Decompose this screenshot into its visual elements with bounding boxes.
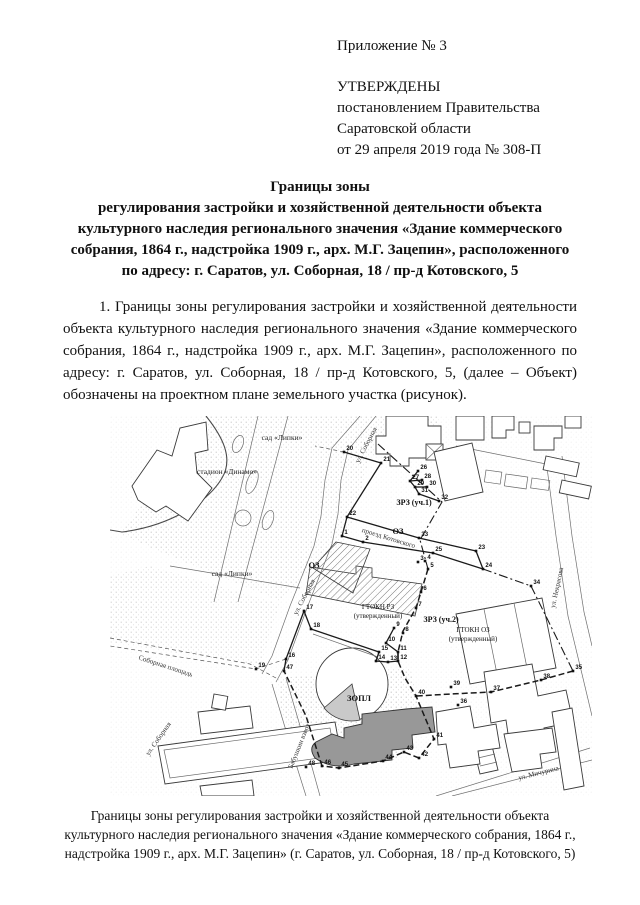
boundary-point-marker [424,560,427,563]
boundary-point-number: 14 [378,655,385,661]
paragraph-1: 1. Границы зоны регулирования застройки … [63,296,577,406]
boundary-point-number: 10 [388,637,395,643]
map-label: стадион «Динамо» [197,467,257,476]
site-plan-map: сад «Липки»стадион «Динамо»сад «Липки»ул… [110,416,592,796]
map-label: сад «Липки» [212,569,253,578]
boundary-point-number: 26 [420,465,427,471]
boundary-point-marker [475,550,478,553]
map-label: ОЗ [392,526,404,536]
boundary-point-marker [417,470,420,473]
boundary-point-marker [285,658,288,661]
boundary-point-number: 16 [288,653,295,659]
approval-line: от 29 апреля 2019 года № 308-П [337,140,577,161]
boundary-point-number: 25 [435,547,442,553]
map-label: ОЗ [308,560,320,570]
boundary-point-number: 32 [441,495,448,501]
map-label: (утвержденный) [354,612,403,620]
boundary-point-marker [338,767,341,770]
boundary-point-number: 31 [421,488,428,494]
boundary-point-marker [438,500,441,503]
caption-line: культурного наследия регионального значе… [63,825,577,844]
boundary-point-number: 40 [418,690,425,696]
title-line: собрания, 1864 г., надстройка 1909 г., а… [63,240,577,261]
map-label: сад «Липки» [262,433,303,442]
boundary-point-number: 21 [383,457,390,463]
boundary-point-marker [283,670,286,673]
boundary-point-number: 18 [313,623,320,629]
boundary-point-marker [382,760,385,763]
boundary-point-marker [418,537,421,540]
document-page: { "page": { "appendix": "Приложение № 3"… [0,0,640,905]
boundary-point-marker [305,766,308,769]
boundary-point-number: 36 [460,699,467,705]
boundary-point-marker [255,668,258,671]
boundary-point-marker [362,541,365,544]
map-label: ЗРЗ (уч.1) [396,498,432,507]
boundary-point-number: 23 [478,545,485,551]
boundary-point-number: 22 [349,511,356,517]
boundary-point-marker [432,552,435,555]
boundary-point-marker [450,686,453,689]
boundary-point-number: 35 [575,665,582,671]
map-label: ГТОКН РЗ [362,603,395,611]
boundary-point-marker [380,462,383,465]
approval-line: Саратовской области [337,119,577,140]
boundary-point-marker [343,451,346,454]
boundary-point-marker [418,757,421,760]
boundary-point-marker [387,661,390,664]
title-line: по адресу: г. Саратов, ул. Соборная, 18 … [63,261,577,282]
boundary-point-marker [457,704,460,707]
boundary-point-number: 29 [417,481,424,487]
boundary-point-number: 17 [306,605,313,611]
boundary-point-number: 43 [406,746,413,752]
boundary-point-number: 41 [436,733,443,739]
boundary-point-number: 13 [390,656,397,662]
boundary-point-number: 24 [485,563,492,569]
boundary-point-number: 33 [421,532,428,538]
boundary-point-marker [572,670,575,673]
boundary-point-marker [409,480,412,483]
approval-line: постановлением Правительства [337,98,577,119]
figure-caption: Границы зоны регулирования застройки и х… [63,806,577,863]
boundary-point-number: 19 [258,663,265,669]
boundary-point-marker [375,660,378,663]
approval-block: УТВЕРЖДЕНЫ постановлением Правительства … [337,77,577,161]
boundary-point-marker [414,486,417,489]
boundary-point-marker [420,591,423,594]
boundary-point-number: 39 [453,681,460,687]
boundary-point-marker [402,632,405,635]
boundary-point-marker [385,642,388,645]
boundary-point-marker [403,751,406,754]
boundary-point-number: 34 [533,580,540,586]
boundary-point-number: 37 [493,686,500,692]
map-label: ЗОПЛ [347,693,372,703]
boundary-point-number: 20 [346,446,353,452]
page: Приложение № 3 УТВЕРЖДЕНЫ постановлением… [0,0,640,905]
boundary-point-number: 11 [400,646,407,652]
boundary-point-marker [530,585,533,588]
boundary-point-number: 42 [421,752,428,758]
boundary-point-number: 28 [424,474,431,480]
caption-line: Границы зоны регулирования застройки и х… [63,806,577,825]
boundary-point-marker [321,765,324,768]
boundary-point-marker [433,738,436,741]
boundary-point-marker [378,651,381,654]
boundary-point-marker [303,610,306,613]
boundary-point-number: 45 [341,762,348,768]
title-line: Границы зоны [63,177,577,198]
document-title: Границы зоны регулирования застройки и х… [63,177,577,282]
boundary-point-marker [341,535,344,538]
boundary-point-marker [540,679,543,682]
boundary-point-marker [418,493,421,496]
boundary-point-number: 46 [324,760,331,766]
boundary-point-marker [490,691,493,694]
appendix-number: Приложение № 3 [337,38,577,55]
boundary-point-number: 38 [543,674,550,680]
boundary-point-number: 47 [286,665,293,671]
approval-line: УТВЕРЖДЕНЫ [337,77,577,98]
boundary-point-marker [482,568,485,571]
caption-line: надстройка 1909 г., арх. М.Г. Зацепин» (… [63,844,577,863]
boundary-point-number: 15 [381,646,388,652]
boundary-point-marker [415,695,418,698]
boundary-point-marker [397,651,400,654]
title-line: регулирования застройки и хозяйственной … [63,198,577,219]
boundary-point-marker [427,568,430,571]
map-label: ЗРЗ (уч.2) [423,615,459,624]
boundary-point-marker [417,561,420,564]
boundary-point-marker [310,628,313,631]
boundary-point-number: 12 [400,655,407,661]
boundary-point-marker [393,627,396,630]
site-plan-figure: сад «Липки»стадион «Динамо»сад «Липки»ул… [110,416,592,796]
boundary-point-number: 44 [385,755,392,761]
boundary-point-marker [346,516,349,519]
map-label: ГТОКН ОЗ [456,626,490,634]
boundary-point-number: 30 [429,481,436,487]
title-line: культурного наследия регионального значе… [63,219,577,240]
boundary-point-marker [415,607,418,610]
map-label: (утвержденный) [449,635,498,643]
boundary-point-number: 48 [308,761,315,767]
